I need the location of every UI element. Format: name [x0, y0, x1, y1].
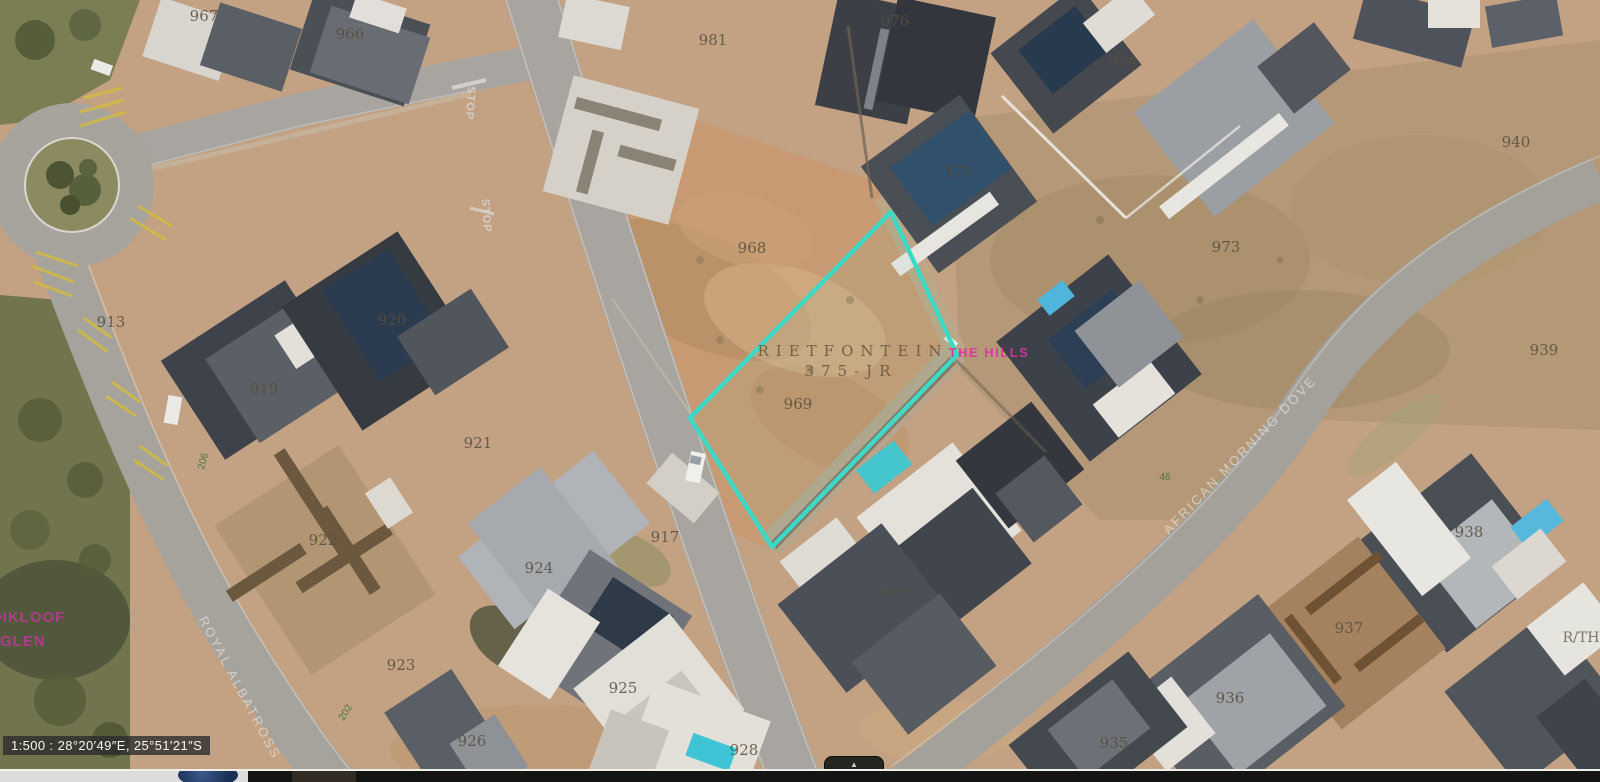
map-application-window: 9679669819769749759409739399689699139199… — [0, 0, 1600, 782]
plot-label: 925 — [609, 679, 638, 697]
plot-label: 981 — [699, 31, 728, 49]
plot-label: 926 — [458, 732, 487, 750]
plot-label: 921 — [464, 434, 493, 452]
neigh-label: OIKLOOF — [0, 609, 65, 626]
taskbar[interactable] — [0, 771, 1600, 782]
plot-label: 922 — [309, 531, 338, 549]
map-canvas[interactable]: 9679669819769749759409739399689699139199… — [0, 0, 1600, 770]
region-label: RIETFONTEIN — [757, 342, 948, 360]
taskbar-logo[interactable] — [178, 771, 238, 782]
plot-label: 940 — [1502, 133, 1531, 151]
taskbar-segment — [292, 771, 356, 782]
neigh-label: GLEN — [0, 633, 46, 650]
up-arrow-icon: ▲ — [850, 761, 858, 769]
taskbar-left-section — [0, 771, 248, 782]
plot-label: 919 — [250, 380, 279, 398]
marking-label: STOP — [479, 199, 493, 234]
housenum-label: 46 — [1159, 472, 1171, 483]
plot-label: 924 — [525, 559, 554, 577]
plot-label: 938 — [1455, 523, 1484, 541]
plot-label: 937 — [1335, 619, 1364, 637]
plot-label: 920 — [378, 311, 407, 329]
plot-label: 970 — [880, 584, 909, 602]
region-label: 375-JR — [804, 362, 897, 380]
partial-label: R/TH — [1563, 630, 1600, 646]
marking-label: STOP — [463, 86, 477, 121]
scale-coordinates-readout: 1:500 : 28°20′49″E, 25°51′21″S — [3, 736, 210, 755]
plot-label: 913 — [97, 313, 126, 331]
plot-label: 923 — [387, 656, 416, 674]
plot-label: 928 — [730, 741, 759, 759]
plot-label: 935 — [1100, 734, 1129, 752]
plot-label: 975 — [944, 163, 973, 181]
plot-label: 917 — [651, 528, 680, 546]
plot-label: 974 — [1109, 53, 1138, 71]
plot-label: 968 — [738, 239, 767, 257]
plot-label: 969 — [784, 395, 813, 413]
plot-label: 939 — [1530, 341, 1559, 359]
plot-label: 973 — [1212, 238, 1241, 256]
plot-label: 936 — [1216, 689, 1245, 707]
plot-label: 967 — [190, 7, 219, 25]
plot-label: 976 — [881, 12, 910, 30]
plot-label: 966 — [336, 25, 365, 43]
estate-label: THE HILLS — [949, 345, 1030, 360]
